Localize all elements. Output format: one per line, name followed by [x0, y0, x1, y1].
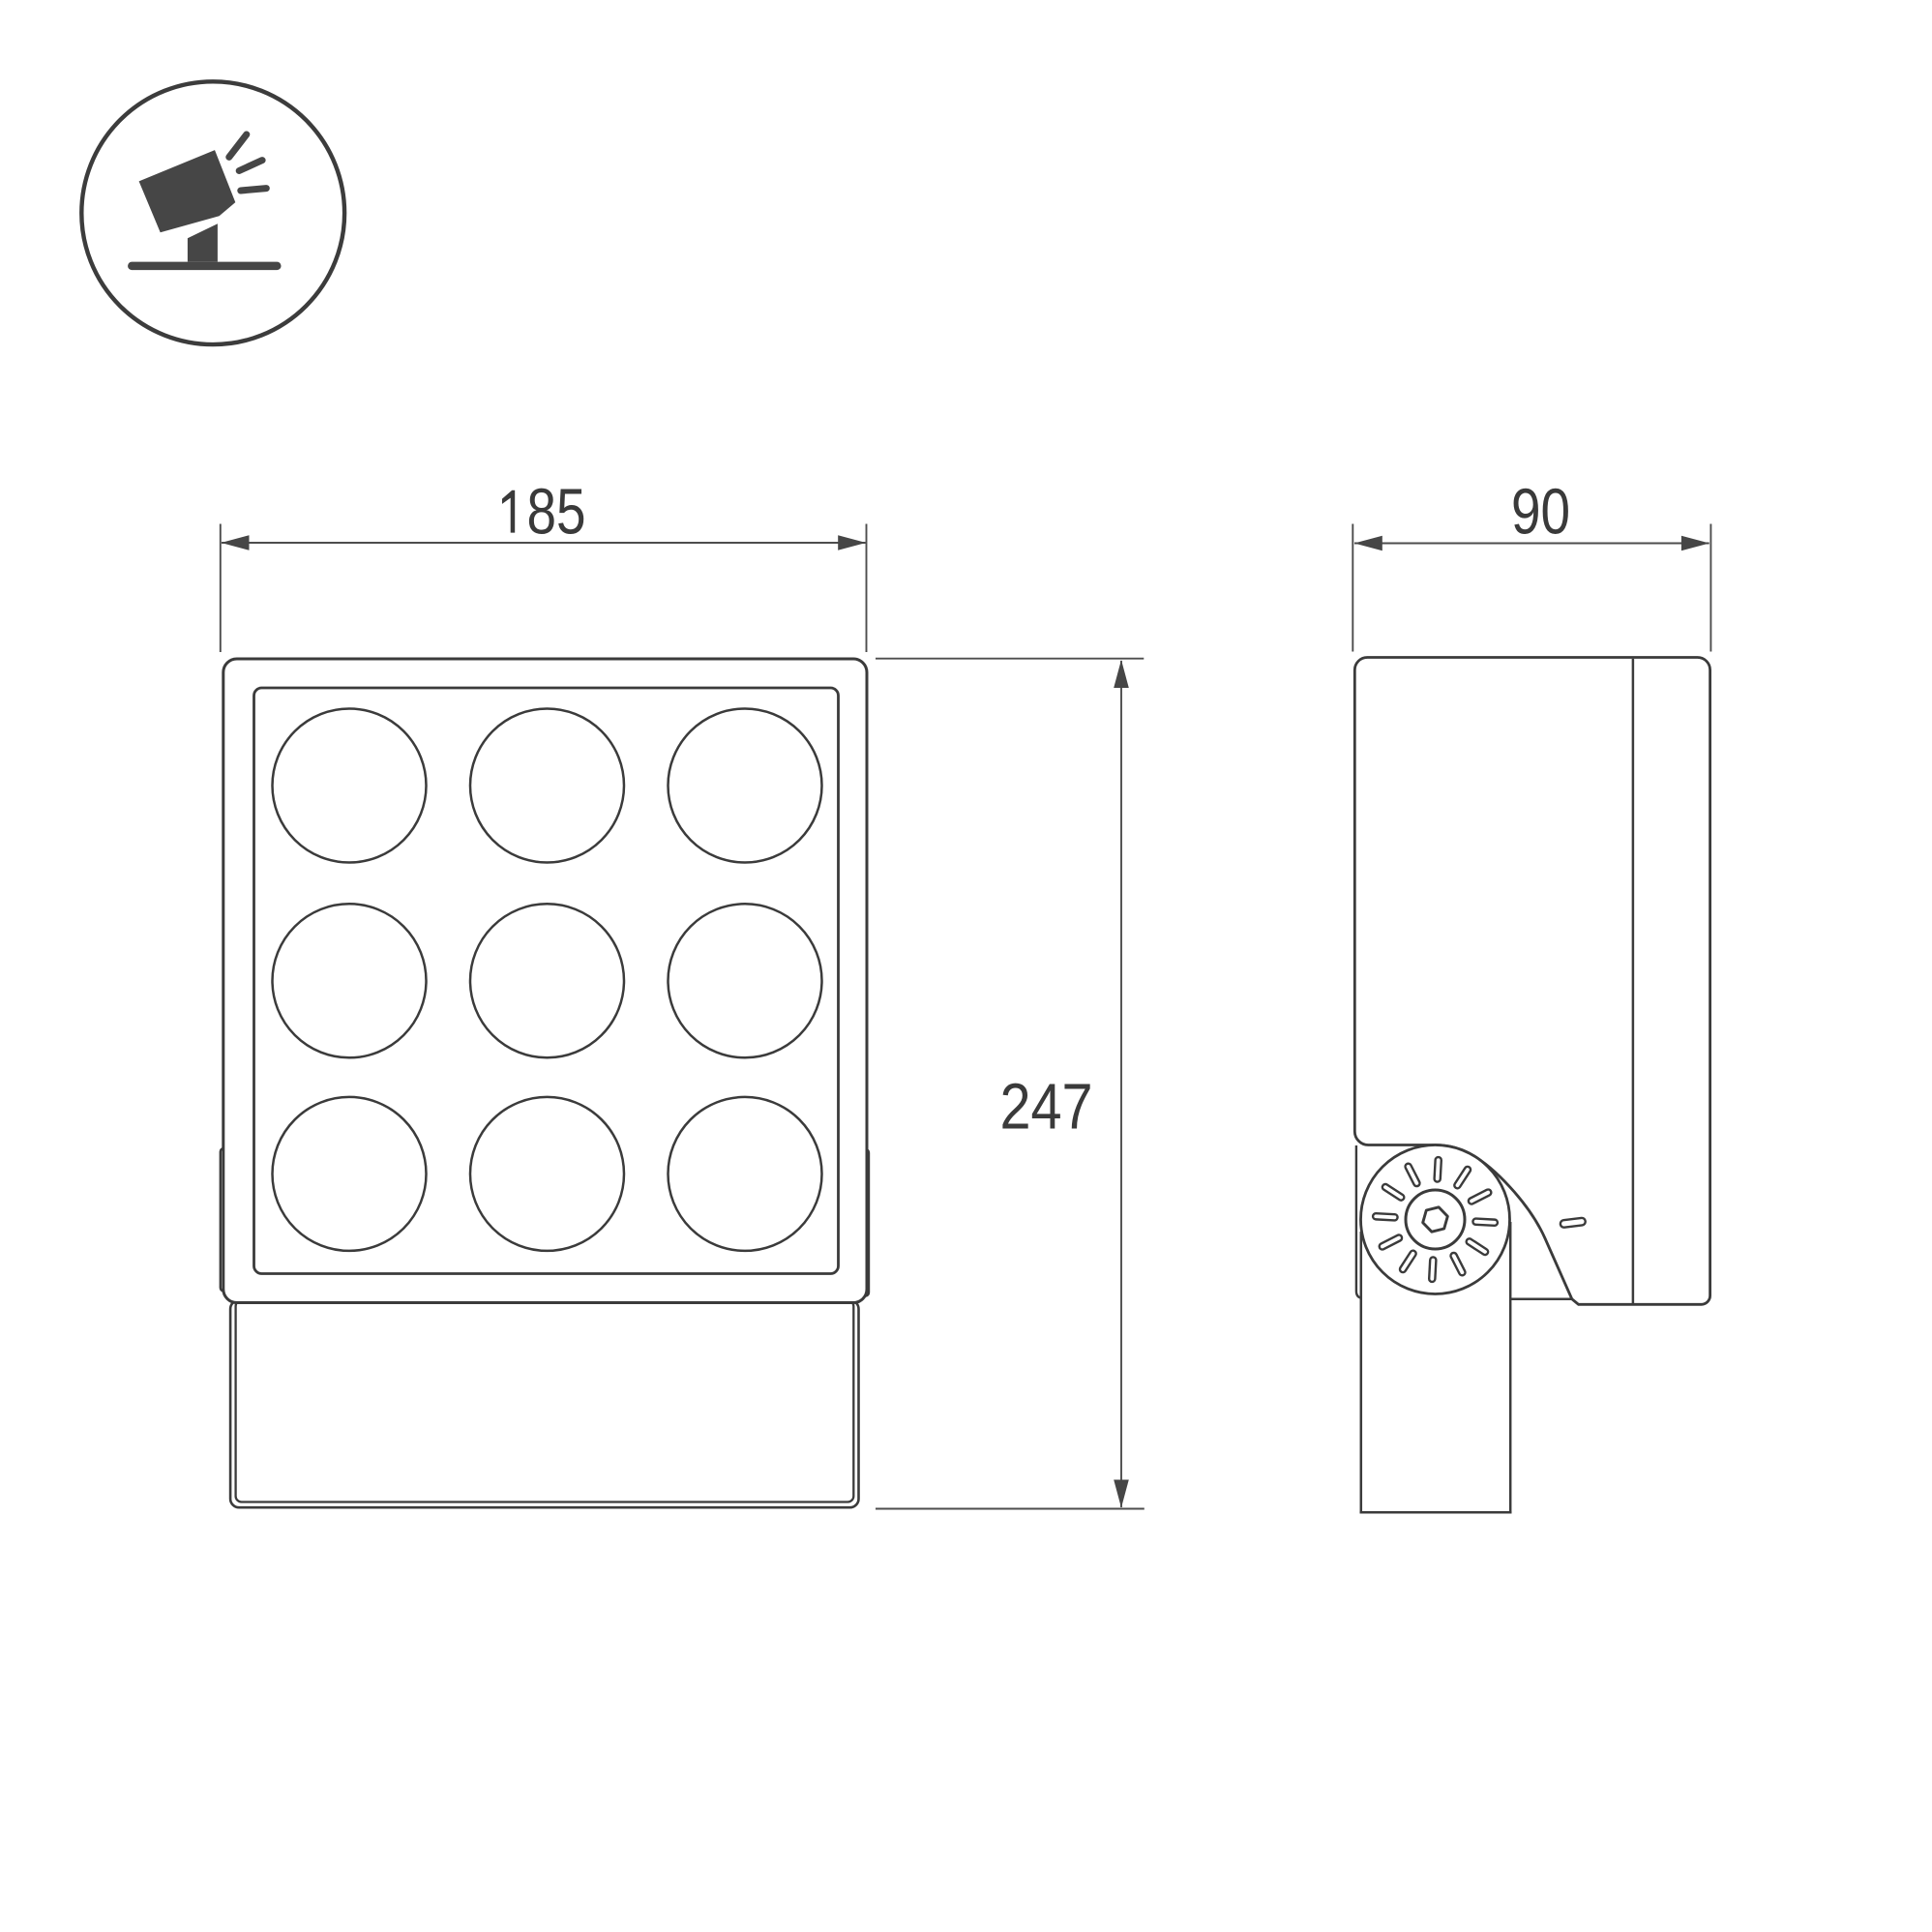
svg-text:85: 85: [526, 475, 585, 547]
svg-text:90: 90: [1511, 475, 1570, 547]
svg-text:247: 247: [999, 1070, 1092, 1143]
